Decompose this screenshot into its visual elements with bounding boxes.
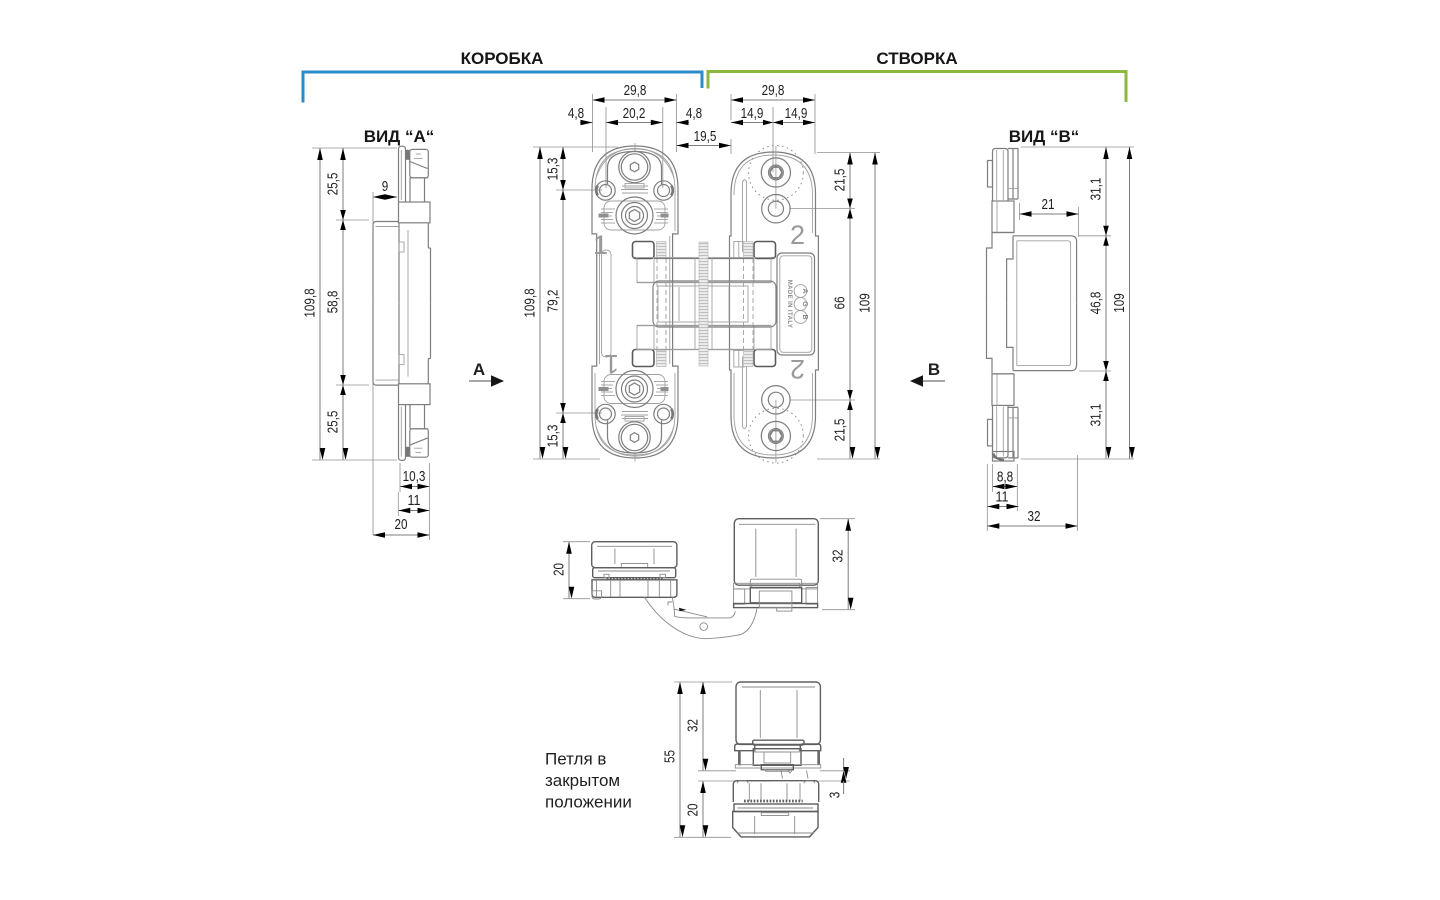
svg-text:11: 11 — [408, 492, 421, 509]
svg-text:21,5: 21,5 — [832, 169, 849, 192]
svg-text:MADE IN ITALY: MADE IN ITALY — [786, 280, 792, 329]
svg-text:109,8: 109,8 — [302, 288, 319, 317]
svg-text:10,3: 10,3 — [403, 468, 426, 485]
svg-text:55: 55 — [662, 750, 679, 763]
svg-text:4,8: 4,8 — [568, 105, 584, 122]
svg-text:Петля в: Петля в — [545, 750, 606, 769]
svg-text:КОРОБКА: КОРОБКА — [461, 49, 544, 68]
svg-text:32: 32 — [830, 550, 847, 563]
svg-text:58,8: 58,8 — [325, 291, 342, 314]
svg-text:20: 20 — [395, 516, 408, 533]
svg-text:32: 32 — [685, 719, 702, 732]
svg-text:14,9: 14,9 — [741, 105, 764, 122]
svg-text:1: 1 — [604, 349, 619, 379]
svg-text:20: 20 — [685, 804, 702, 817]
svg-text:21,5: 21,5 — [832, 419, 849, 442]
svg-text:109: 109 — [1111, 293, 1128, 313]
svg-text:32: 32 — [1028, 508, 1041, 525]
svg-text:A: A — [473, 360, 485, 379]
svg-text:14,9: 14,9 — [785, 105, 808, 122]
svg-text:11: 11 — [996, 489, 1009, 506]
svg-text:ВИД “А“: ВИД “А“ — [364, 127, 435, 146]
svg-text:СТВОРКА: СТВОРКА — [876, 49, 957, 68]
svg-text:19,5: 19,5 — [694, 128, 717, 145]
svg-text:109,8: 109,8 — [522, 288, 539, 317]
svg-text:15,3: 15,3 — [545, 158, 562, 181]
svg-text:46,8: 46,8 — [1088, 292, 1105, 315]
svg-text:31,1: 31,1 — [1088, 404, 1105, 427]
svg-text:4,8: 4,8 — [686, 105, 702, 122]
svg-text:20,2: 20,2 — [623, 105, 646, 122]
svg-text:21: 21 — [1042, 196, 1055, 213]
svg-text:79,2: 79,2 — [545, 290, 562, 313]
svg-text:1: 1 — [593, 230, 608, 260]
svg-text:66: 66 — [832, 297, 849, 310]
svg-text:8,8: 8,8 — [997, 469, 1013, 486]
svg-text:9: 9 — [382, 178, 389, 195]
svg-text:положении: положении — [545, 793, 632, 812]
svg-text:закрытом: закрытом — [545, 771, 620, 790]
svg-text:15,3: 15,3 — [545, 425, 562, 448]
svg-text:3: 3 — [827, 792, 844, 799]
svg-text:25,5: 25,5 — [325, 411, 342, 434]
svg-text:20: 20 — [551, 563, 568, 576]
svg-text:29,8: 29,8 — [762, 82, 785, 99]
svg-text:2: 2 — [790, 354, 805, 384]
svg-text:2: 2 — [790, 220, 805, 250]
svg-text:B: B — [801, 314, 808, 319]
svg-text:ВИД “В“: ВИД “В“ — [1009, 127, 1080, 146]
svg-text:25,5: 25,5 — [325, 173, 342, 196]
svg-text:A: A — [801, 288, 808, 293]
svg-text:31,1: 31,1 — [1088, 178, 1105, 201]
svg-text:29,8: 29,8 — [624, 82, 647, 99]
svg-text:B: B — [928, 360, 940, 379]
svg-text:G: G — [801, 301, 808, 307]
svg-text:109: 109 — [857, 293, 874, 313]
